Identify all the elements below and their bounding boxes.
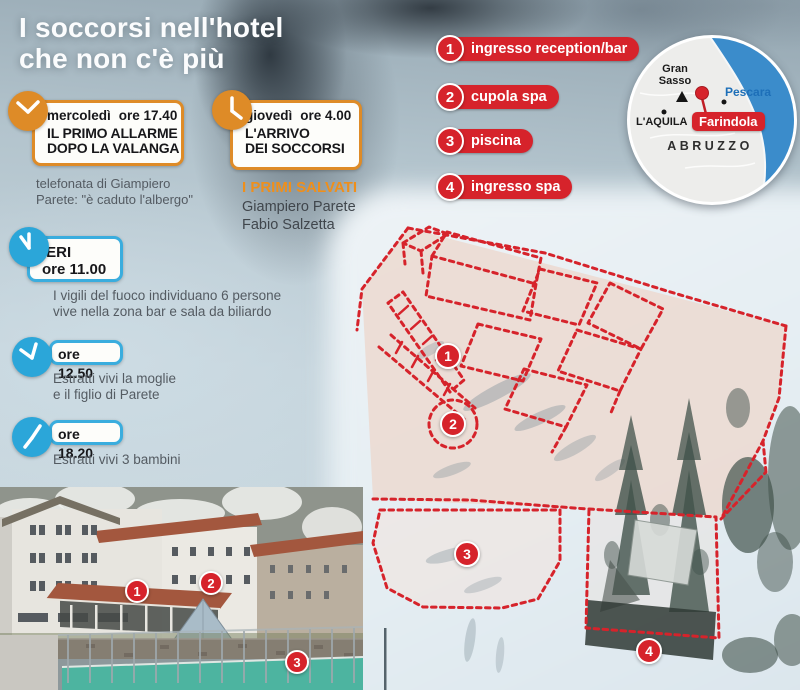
event-title-line1: IL PRIMO ALLARME [47, 126, 173, 141]
pescara-dot [722, 100, 727, 105]
page-title: I soccorsi nell'hotel che non c'è più [19, 12, 284, 74]
event-title-line2: DEI SOCCORSI [245, 141, 351, 156]
event-time: ore 17.40 [119, 108, 178, 123]
map-label-gran-sasso: Gran Sasso [650, 64, 700, 87]
aerial-marker-4: 4 [636, 638, 662, 664]
event-note-1250: Estratti vivi la moglie e il figlio di P… [53, 371, 176, 402]
legend-badge-4: 4 [436, 173, 464, 201]
aerial-marker-1: 1 [435, 343, 461, 369]
first-rescued-heading: I PRIMI SALVATI [242, 179, 357, 196]
map-label-laquila: L'AQUILA [636, 116, 688, 128]
first-rescued-names: Giampiero Parete Fabio Salzetta [242, 198, 356, 234]
event-time: ore 11.00 [42, 261, 112, 278]
photo-marker-3: 3 [285, 650, 309, 674]
avalanche-rescue-infographic: I soccorsi nell'hotel che non c'è più in… [0, 0, 800, 690]
legend-badge-1: 1 [436, 35, 464, 63]
event-title-line1: L'ARRIVO [245, 126, 351, 141]
event-title-line2: DOPO LA VALANGA [47, 141, 173, 156]
event-box-1250: ore 12.50 [49, 340, 123, 365]
legend-badge-2: 2 [436, 83, 464, 111]
photo-marker-2: 2 [199, 571, 223, 595]
page-title-line1: I soccorsi nell'hotel [19, 12, 284, 43]
legend-badge-3: 3 [436, 127, 464, 155]
location-pin-icon [696, 87, 709, 115]
photo-marker-1: 1 [125, 579, 149, 603]
event-day: IERI [42, 244, 112, 261]
laquila-dot [662, 110, 667, 115]
event-box-1820: ore 18.20 [49, 420, 123, 445]
utility-pole [384, 628, 387, 690]
avalanche-tint [362, 228, 786, 638]
map-label-pescara: Pescara [725, 85, 771, 99]
legend-item-ingresso-spa: ingresso spa [447, 175, 572, 199]
clock-icon-0400 [212, 90, 252, 130]
map-label-abruzzo: ABRUZZO [650, 139, 770, 153]
map-label-farindola: Farindola [692, 112, 765, 131]
legend-item-reception: ingresso reception/bar [447, 37, 639, 61]
locator-map: Gran Sasso Pescara L'AQUILA Farindola AB… [627, 35, 797, 205]
event-day: mercoledì [47, 108, 111, 123]
aerial-marker-2: 2 [440, 411, 466, 437]
clock-icon-1740 [8, 91, 48, 131]
event-note-1820: Estratti vivi 3 bambini [53, 452, 181, 468]
event-time: ore 4.00 [300, 108, 351, 123]
clock-icon-1820 [12, 417, 52, 457]
aerial-marker-3: 3 [454, 541, 480, 567]
event-day: giovedì [245, 108, 292, 123]
page-title-line2: che non c'è più [19, 43, 284, 74]
clock-icon-1250 [12, 337, 52, 377]
clock-icon-1100 [9, 227, 49, 267]
event-note-yesterday: I vigili del fuoco individuano 6 persone… [53, 288, 281, 319]
event-note-first-alarm: telefonata di Giampiero Parete: "è cadut… [36, 176, 193, 207]
concrete-block [0, 635, 58, 690]
event-box-first-alarm: mercoledìore 17.40 IL PRIMO ALLARME DOPO… [32, 100, 184, 166]
